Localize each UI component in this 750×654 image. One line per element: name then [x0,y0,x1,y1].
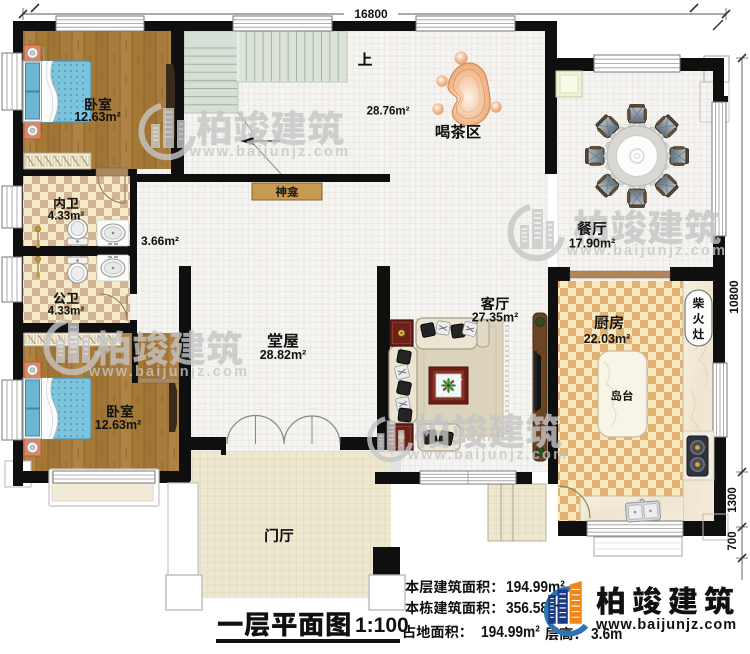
svg-text:28.82m²: 28.82m² [260,348,307,362]
svg-text:16800: 16800 [354,7,388,21]
svg-text:27.35m²: 27.35m² [472,311,519,325]
svg-text:17.90m²: 17.90m² [569,237,616,251]
svg-text:www.baijunjz.com: www.baijunjz.com [88,364,249,380]
svg-text:12.63m²: 12.63m² [95,418,142,432]
svg-text:www.baijunjz.com: www.baijunjz.com [407,447,568,463]
svg-text:10800: 10800 [727,280,741,314]
svg-text:194.99m²: 194.99m² [481,623,540,641]
svg-text:3.66m²: 3.66m² [141,234,179,248]
svg-text:1:100: 1:100 [355,614,409,637]
svg-text:22.03m²: 22.03m² [584,332,631,346]
svg-text:www.baijunjz.com: www.baijunjz.com [595,617,737,633]
svg-text:12.63m²: 12.63m² [74,110,121,124]
svg-text:4.33m²: 4.33m² [48,211,85,223]
svg-text:700: 700 [727,531,739,550]
svg-text:28.76m²: 28.76m² [367,106,410,118]
svg-text:1300: 1300 [727,487,739,513]
svg-text:4.33m²: 4.33m² [48,306,85,318]
svg-text:www.baijunjz.com: www.baijunjz.com [189,144,350,160]
svg-text:356.58m²: 356.58m² [506,599,565,617]
